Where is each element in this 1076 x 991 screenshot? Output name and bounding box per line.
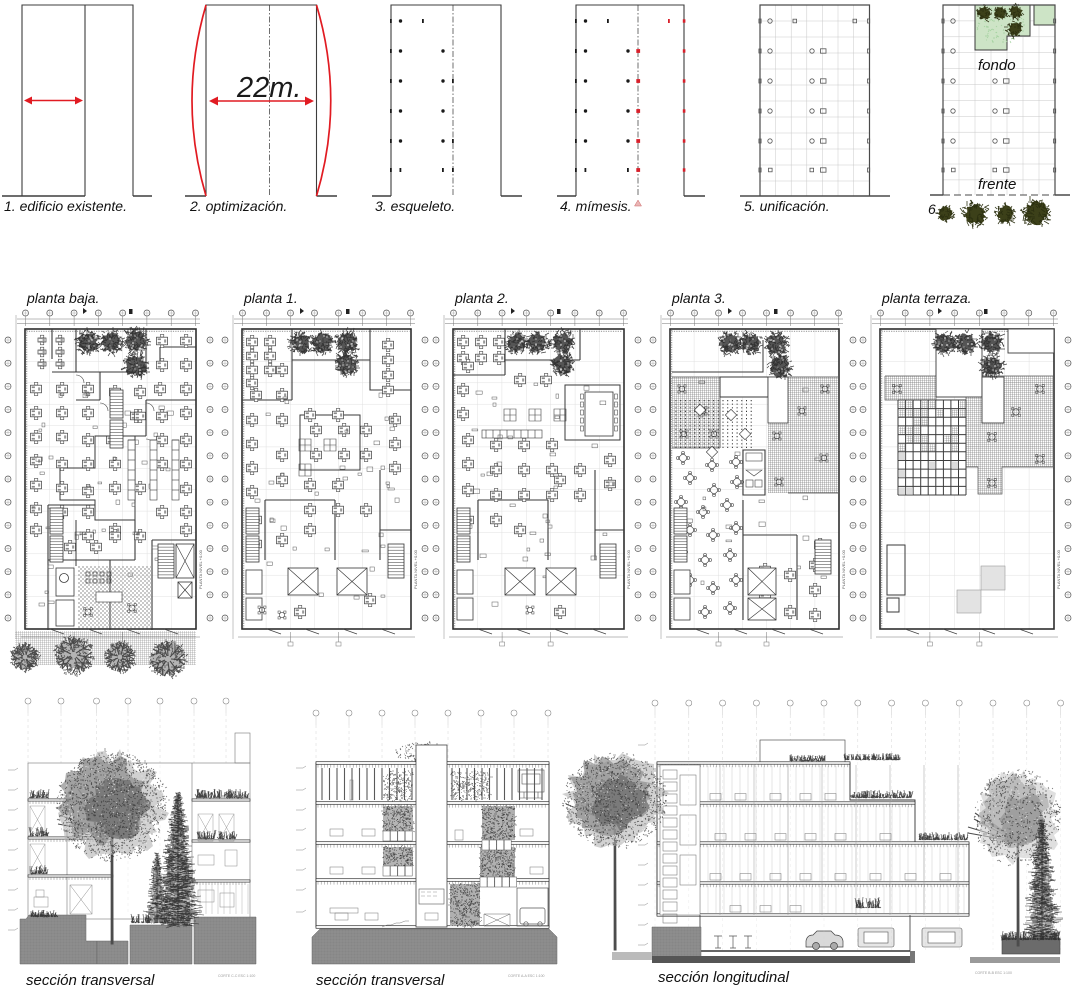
svg-text:PLANTA NIVEL +0.00: PLANTA NIVEL +0.00 [626,549,631,589]
svg-text:planta 1.: planta 1. [243,290,298,306]
svg-text:frente: frente [978,176,1016,193]
svg-text:PLANTA NIVEL +0.00: PLANTA NIVEL +0.00 [841,549,846,589]
svg-text:3. esqueleto.: 3. esqueleto. [375,198,455,214]
svg-text:5. unificación.: 5. unificación. [744,198,830,214]
svg-text:CORTE B-B ESC 1:100: CORTE B-B ESC 1:100 [975,971,1012,975]
svg-text:PLANTA NIVEL +0.00: PLANTA NIVEL +0.00 [198,549,203,589]
svg-text:PLANTA NIVEL +0.00: PLANTA NIVEL +0.00 [413,549,418,589]
svg-text:fondo: fondo [978,57,1016,74]
svg-text:planta 3.: planta 3. [671,290,726,306]
svg-text:2. optimización.: 2. optimización. [189,198,287,214]
svg-text:sección longitudinal: sección longitudinal [658,969,790,986]
svg-text:sección transversal: sección transversal [26,972,155,989]
svg-text:planta baja.: planta baja. [26,290,99,306]
svg-text:CORTE A-A ESC 1:100: CORTE A-A ESC 1:100 [508,974,545,978]
svg-text:PLANTA NIVEL +0.00: PLANTA NIVEL +0.00 [1056,549,1061,589]
svg-text:4. mímesis.: 4. mímesis. [560,198,632,214]
svg-text:planta terraza.: planta terraza. [881,290,972,306]
svg-text:CORTE C-C ESC 1:100: CORTE C-C ESC 1:100 [218,974,255,978]
svg-text:22m.: 22m. [236,72,301,104]
svg-text:1. edificio existente.: 1. edificio existente. [4,198,127,214]
svg-text:sección transversal: sección transversal [316,972,445,989]
svg-text:planta 2.: planta 2. [454,290,509,306]
svg-text:6.: 6. [928,201,940,217]
